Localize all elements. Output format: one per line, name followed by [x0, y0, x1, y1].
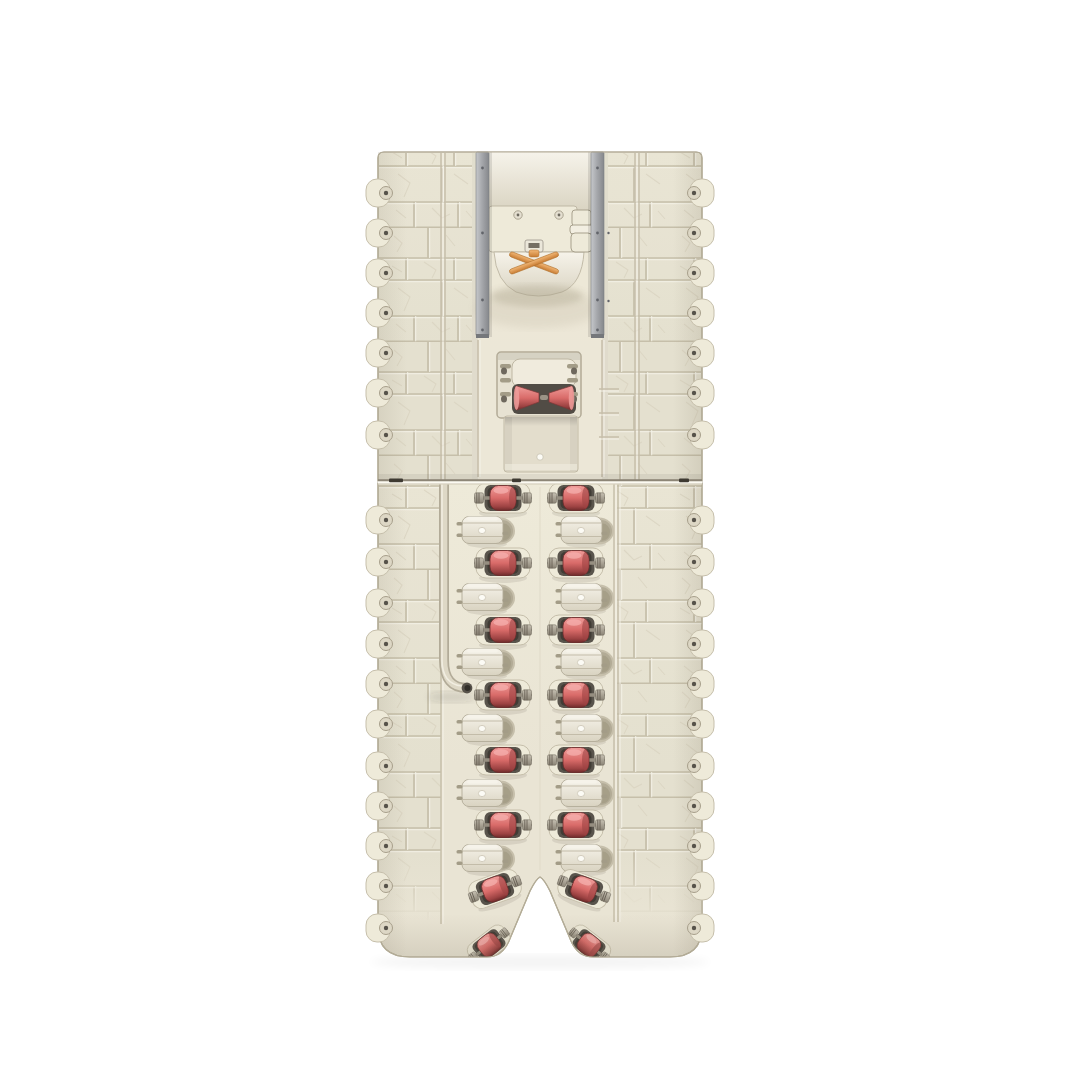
bottom-panel	[378, 483, 702, 973]
top-panel	[378, 152, 702, 481]
seam-clip	[679, 479, 689, 483]
panel-seam	[378, 479, 702, 485]
seam-clip	[512, 479, 521, 483]
render-canvas	[0, 0, 1080, 1080]
product-render	[0, 0, 1080, 1080]
seam-clip	[389, 479, 403, 483]
